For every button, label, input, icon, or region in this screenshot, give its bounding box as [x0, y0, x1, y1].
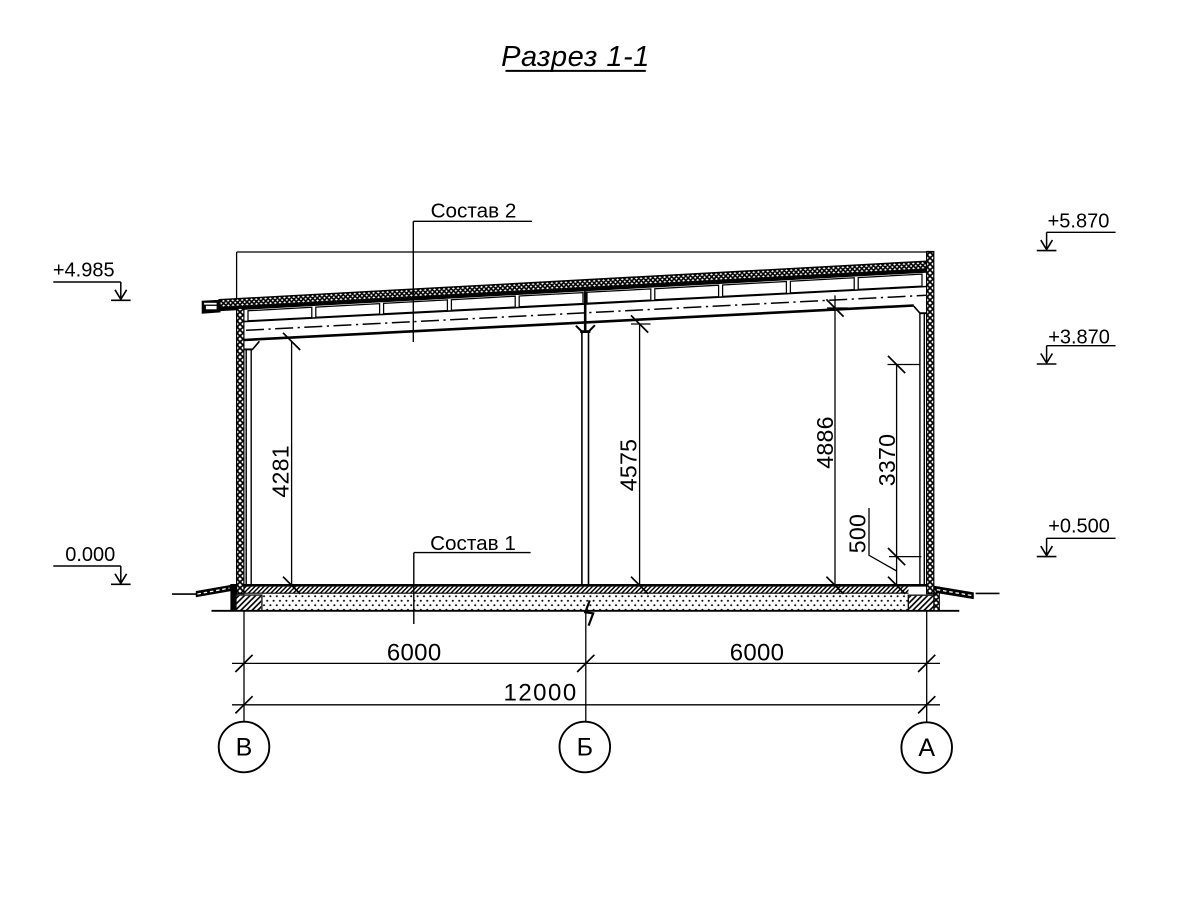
svg-text:Состав 2: Состав 2 — [431, 199, 517, 222]
svg-text:+5.870: +5.870 — [1048, 210, 1110, 232]
svg-text:Состав 1: Состав 1 — [430, 532, 516, 555]
svg-text:+4.985: +4.985 — [53, 259, 115, 281]
svg-text:6000: 6000 — [387, 639, 442, 666]
svg-text:6000: 6000 — [730, 639, 785, 666]
svg-text:3370: 3370 — [874, 434, 900, 486]
svg-text:+0.500: +0.500 — [1048, 516, 1110, 538]
svg-text:4281: 4281 — [267, 445, 293, 497]
svg-text:Разрез 1-1: Разрез 1-1 — [501, 41, 650, 73]
svg-text:4886: 4886 — [812, 416, 838, 468]
svg-text:500: 500 — [844, 514, 870, 553]
svg-text:В: В — [236, 734, 253, 762]
svg-text:0.000: 0.000 — [65, 544, 115, 566]
svg-text:4575: 4575 — [615, 439, 641, 491]
svg-text:12000: 12000 — [503, 680, 577, 707]
svg-text:Б: Б — [577, 734, 593, 762]
svg-text:А: А — [918, 734, 935, 762]
